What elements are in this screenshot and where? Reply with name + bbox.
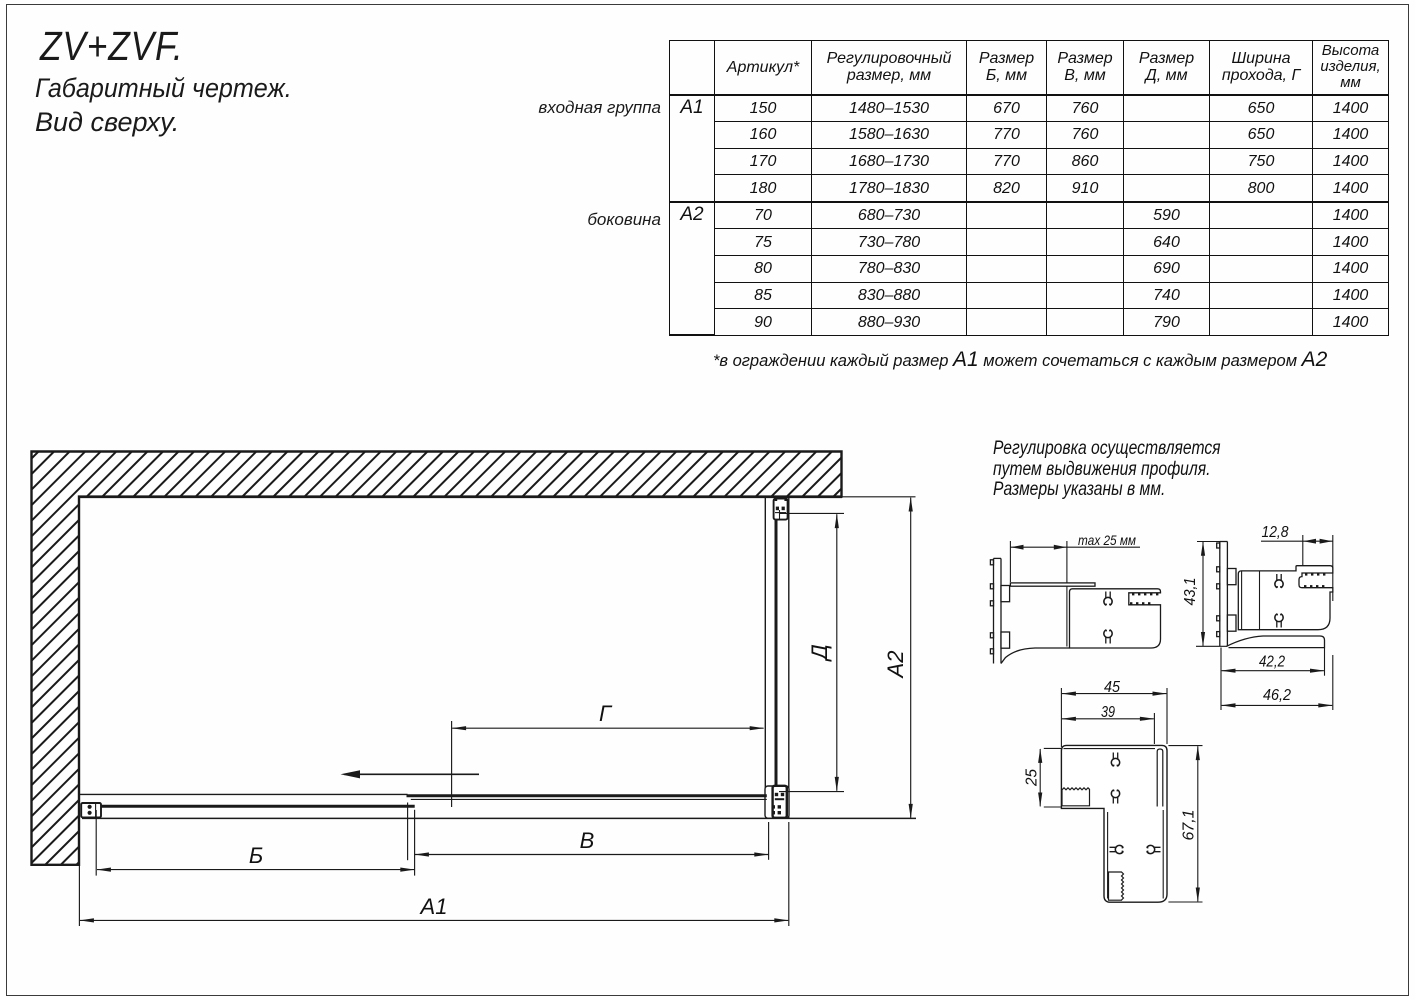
svg-text:А1: А1	[419, 894, 448, 919]
svg-text:12,8: 12,8	[1262, 524, 1289, 541]
svg-text:46,2: 46,2	[1263, 687, 1291, 704]
svg-text:Б: Б	[249, 843, 263, 868]
svg-text:Д: Д	[807, 644, 832, 663]
svg-text:39: 39	[1101, 704, 1115, 721]
svg-text:43,1: 43,1	[1182, 578, 1199, 606]
svg-text:А2: А2	[883, 651, 908, 680]
svg-text:67,1: 67,1	[1181, 810, 1198, 841]
svg-text:max 25 мм: max 25 мм	[1078, 532, 1136, 548]
svg-text:Г: Г	[599, 701, 613, 726]
svg-text:25: 25	[1024, 769, 1041, 787]
svg-text:42,2: 42,2	[1259, 654, 1285, 671]
svg-text:В: В	[580, 828, 595, 853]
svg-text:45: 45	[1104, 679, 1120, 696]
